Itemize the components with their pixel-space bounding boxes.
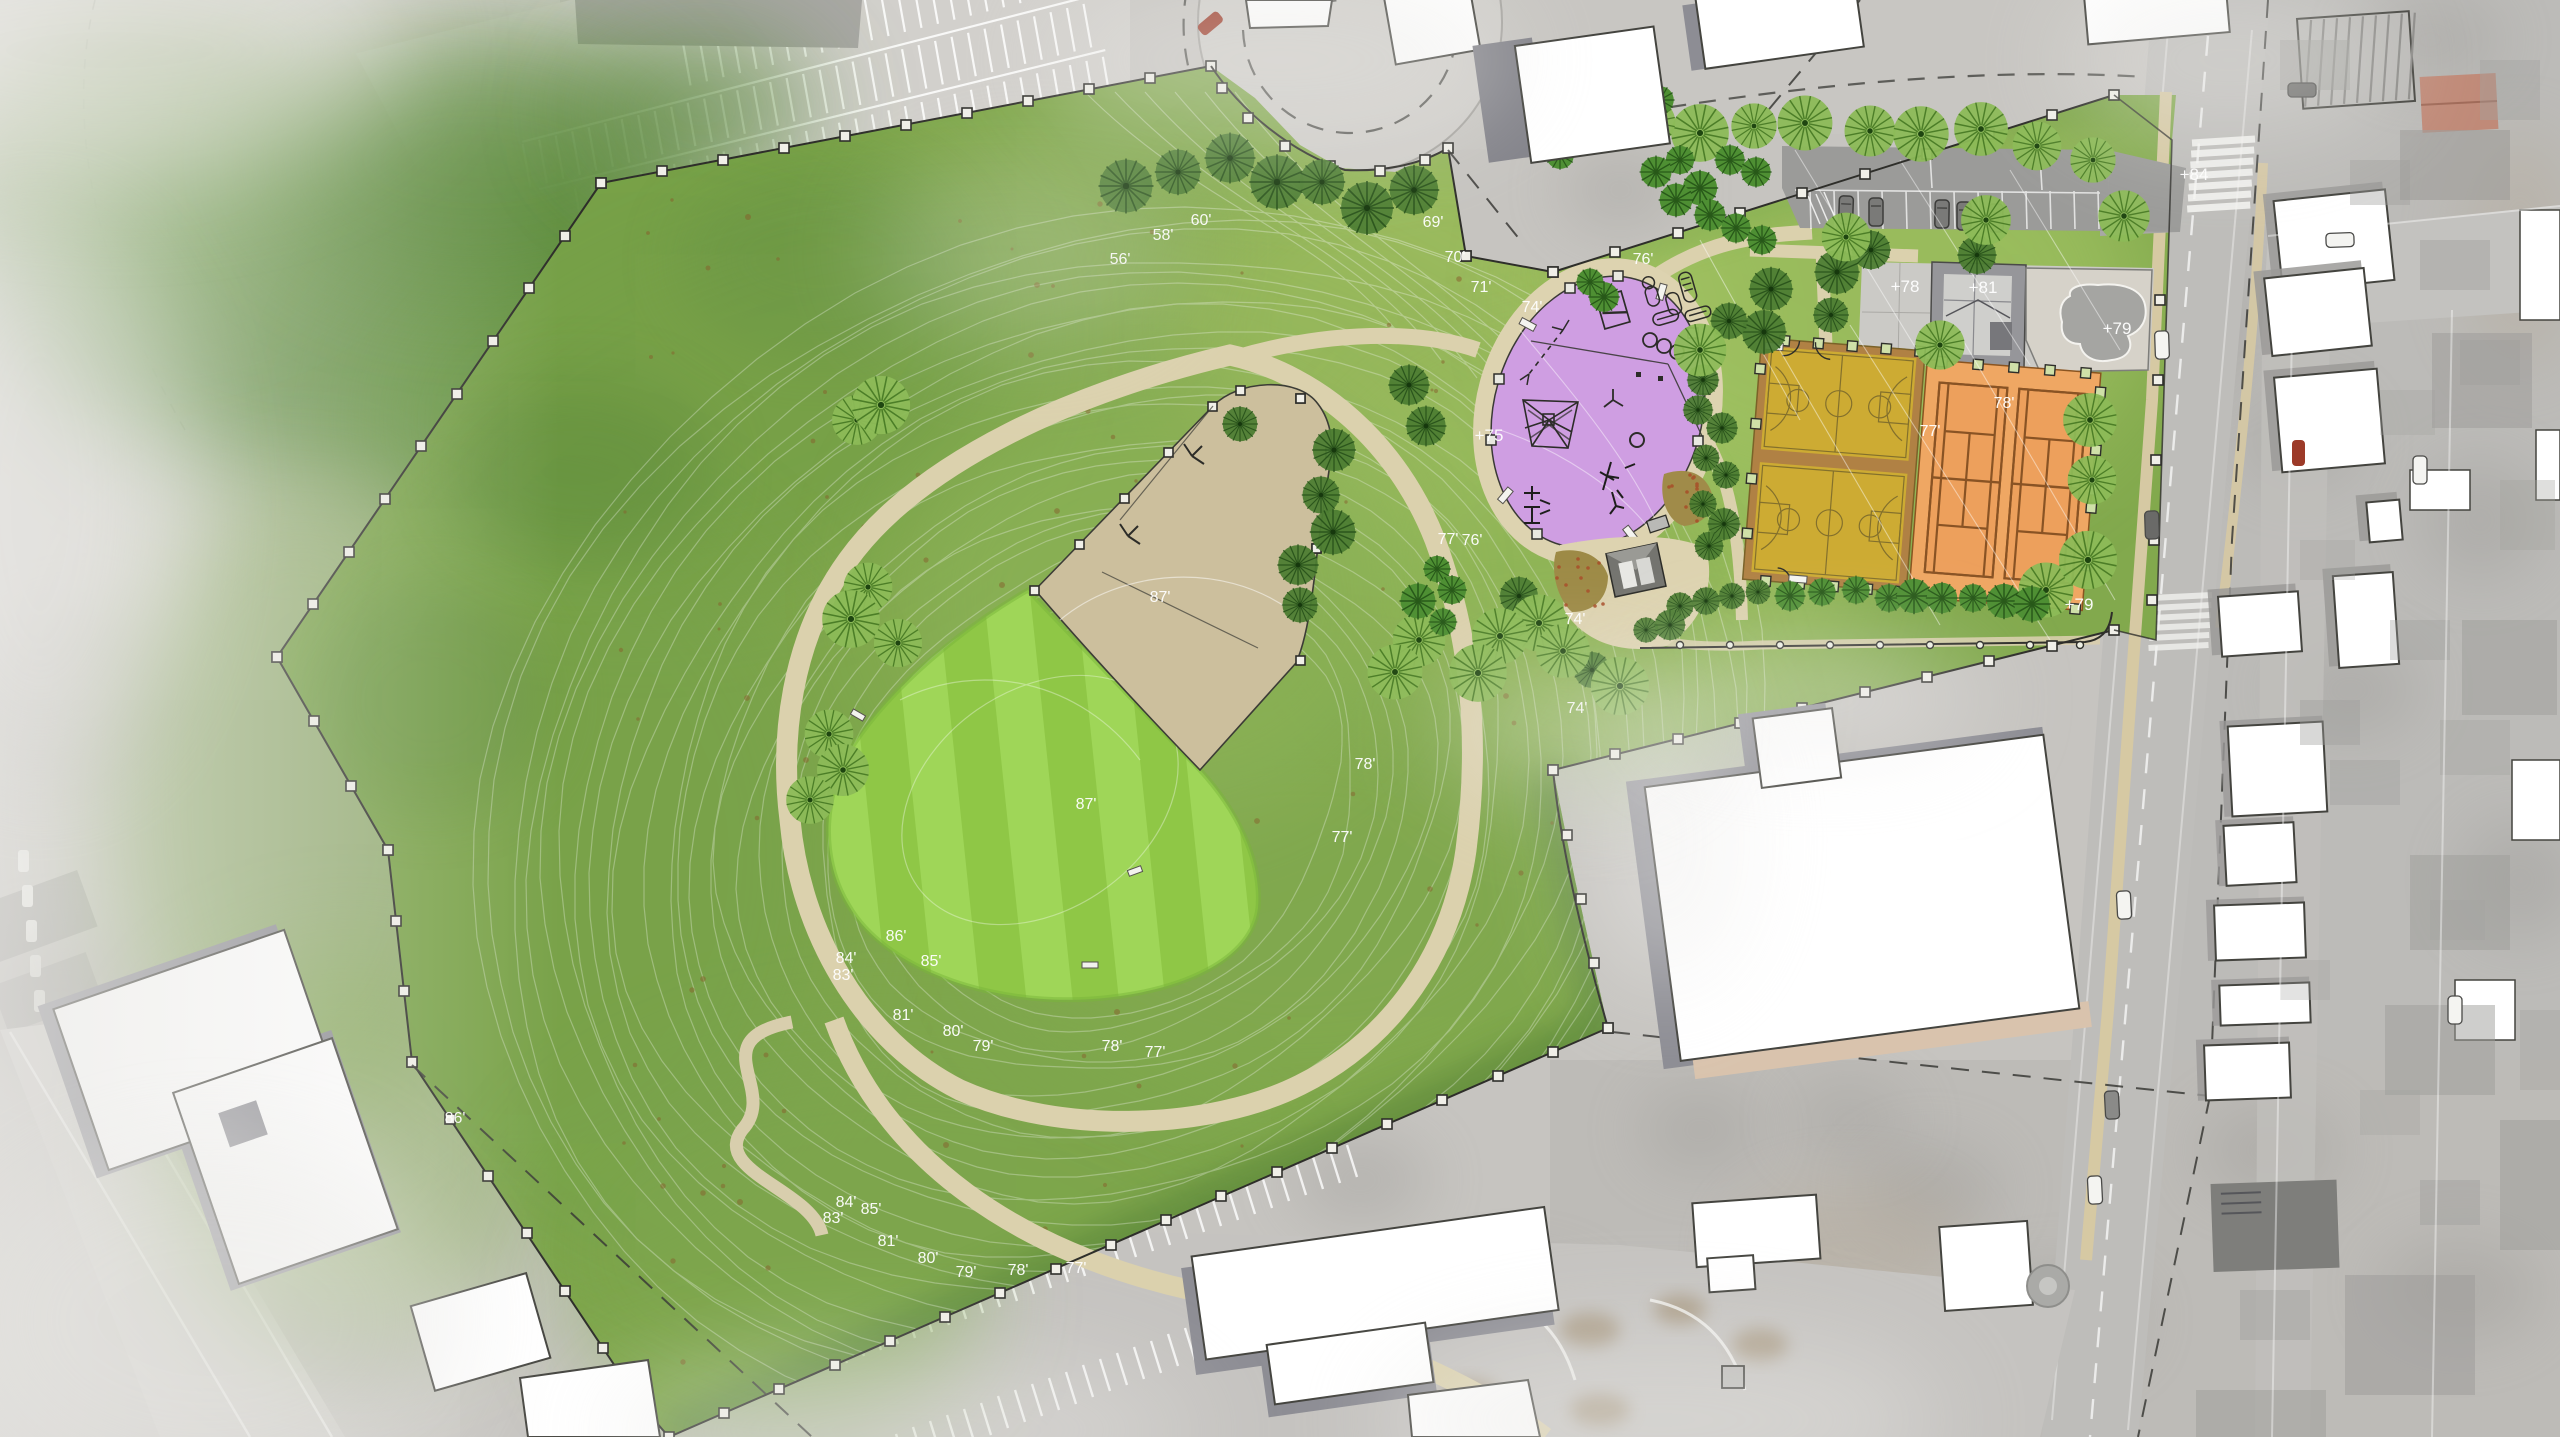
svg-text:79': 79' xyxy=(956,1264,977,1281)
svg-text:77': 77' xyxy=(1438,531,1459,548)
svg-text:76': 76' xyxy=(1633,251,1654,268)
svg-text:+81: +81 xyxy=(1969,278,1998,297)
svg-text:83': 83' xyxy=(823,1210,844,1227)
svg-text:78': 78' xyxy=(1355,756,1376,773)
svg-text:+79: +79 xyxy=(2103,319,2132,338)
svg-text:77': 77' xyxy=(1145,1044,1166,1061)
svg-text:84': 84' xyxy=(836,1194,857,1211)
svg-text:74': 74' xyxy=(1565,611,1586,628)
svg-text:70': 70' xyxy=(1445,249,1466,266)
svg-text:78': 78' xyxy=(1102,1038,1123,1055)
svg-text:78': 78' xyxy=(1994,395,2015,412)
svg-text:84': 84' xyxy=(836,950,857,967)
svg-text:77': 77' xyxy=(1332,829,1353,846)
svg-text:77': 77' xyxy=(1066,1260,1087,1277)
svg-text:+78: +78 xyxy=(1891,277,1920,296)
svg-text:+84: +84 xyxy=(2180,165,2209,184)
svg-text:85': 85' xyxy=(921,953,942,970)
svg-text:79': 79' xyxy=(973,1038,994,1055)
svg-text:80': 80' xyxy=(943,1023,964,1040)
svg-text:81': 81' xyxy=(893,1007,914,1024)
svg-text:77': 77' xyxy=(1920,423,1941,440)
svg-text:80': 80' xyxy=(918,1250,939,1267)
svg-text:76': 76' xyxy=(1462,532,1483,549)
svg-text:+79: +79 xyxy=(2065,595,2094,614)
svg-text:81': 81' xyxy=(878,1233,899,1250)
svg-text:78': 78' xyxy=(1008,1262,1029,1279)
svg-text:74': 74' xyxy=(1522,299,1543,316)
svg-text:60': 60' xyxy=(1191,212,1212,229)
svg-text:86': 86' xyxy=(886,928,907,945)
svg-text:87': 87' xyxy=(1150,589,1171,606)
svg-text:83': 83' xyxy=(833,967,854,984)
svg-text:85': 85' xyxy=(861,1201,882,1218)
svg-text:87': 87' xyxy=(1076,796,1097,813)
svg-text:71': 71' xyxy=(1471,279,1492,296)
svg-text:+75: +75 xyxy=(1475,426,1504,445)
svg-text:69': 69' xyxy=(1423,214,1444,231)
